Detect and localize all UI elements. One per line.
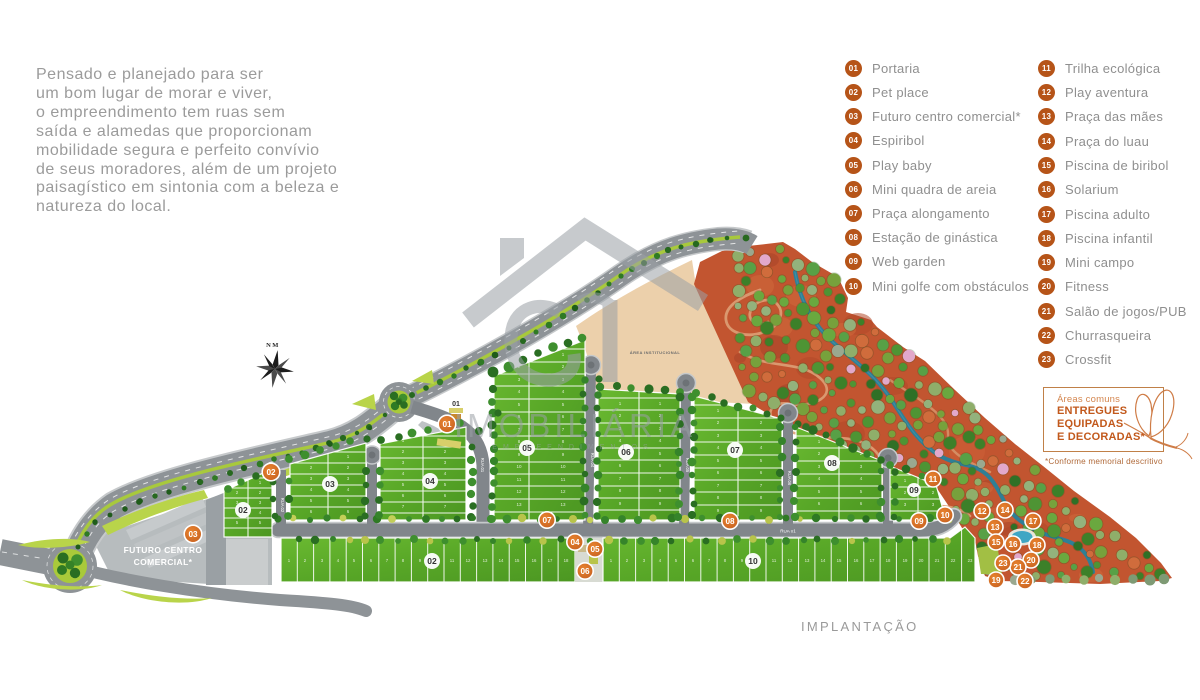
svg-text:09: 09 xyxy=(914,517,924,526)
svg-text:NM: NM xyxy=(266,342,280,349)
svg-text:17: 17 xyxy=(1028,517,1038,526)
svg-text:12: 12 xyxy=(516,489,522,494)
svg-text:18: 18 xyxy=(886,558,891,563)
svg-text:13: 13 xyxy=(483,558,488,563)
svg-text:14: 14 xyxy=(499,558,504,563)
svg-text:13: 13 xyxy=(560,502,566,507)
svg-text:IMOBILIÁRIA: IMOBILIÁRIA xyxy=(454,407,696,444)
svg-text:RUA 01: RUA 01 xyxy=(480,458,485,473)
svg-text:15: 15 xyxy=(515,558,520,563)
svg-text:17: 17 xyxy=(870,558,875,563)
svg-text:15: 15 xyxy=(991,538,1001,547)
svg-text:17: 17 xyxy=(548,558,553,563)
svg-text:02: 02 xyxy=(266,468,276,477)
svg-text:03: 03 xyxy=(325,479,335,489)
svg-text:04: 04 xyxy=(425,476,435,486)
svg-text:18: 18 xyxy=(1032,541,1042,550)
svg-text:COMERCIAL*: COMERCIAL* xyxy=(134,557,193,567)
svg-text:02: 02 xyxy=(427,556,437,566)
svg-text:23: 23 xyxy=(968,558,973,563)
svg-text:02: 02 xyxy=(238,505,248,515)
svg-text:11: 11 xyxy=(929,475,938,484)
svg-text:04: 04 xyxy=(570,538,580,547)
svg-text:21: 21 xyxy=(935,558,940,563)
svg-text:06: 06 xyxy=(580,567,590,576)
svg-text:19: 19 xyxy=(991,576,1001,585)
svg-text:22: 22 xyxy=(951,558,956,563)
svg-text:10: 10 xyxy=(516,464,522,469)
svg-text:11: 11 xyxy=(450,558,455,563)
svg-text:22: 22 xyxy=(1020,577,1030,586)
svg-text:10: 10 xyxy=(748,556,758,566)
svg-text:08: 08 xyxy=(725,517,735,526)
svg-text:07: 07 xyxy=(730,445,740,455)
svg-text:11: 11 xyxy=(561,477,566,482)
svg-text:03: 03 xyxy=(188,530,198,539)
svg-text:12: 12 xyxy=(466,558,471,563)
svg-text:11: 11 xyxy=(772,558,777,563)
svg-text:12: 12 xyxy=(560,489,566,494)
svg-text:01: 01 xyxy=(442,420,452,429)
svg-text:19: 19 xyxy=(903,558,908,563)
svg-text:20: 20 xyxy=(1026,556,1036,565)
svg-text:13: 13 xyxy=(805,558,810,563)
svg-text:05: 05 xyxy=(590,545,600,554)
svg-text:14: 14 xyxy=(1000,506,1010,515)
svg-text:21: 21 xyxy=(1013,563,1023,572)
svg-text:10: 10 xyxy=(940,511,950,520)
svg-text:13: 13 xyxy=(990,523,1000,532)
svg-text:16: 16 xyxy=(532,558,537,563)
svg-text:EMPREENDIMENTOS: EMPREENDIMENTOS xyxy=(492,444,653,451)
svg-text:23: 23 xyxy=(998,559,1008,568)
svg-text:07: 07 xyxy=(542,516,552,525)
svg-text:15: 15 xyxy=(837,558,842,563)
svg-text:FUTURO CENTRO: FUTURO CENTRO xyxy=(124,545,203,555)
svg-text:08: 08 xyxy=(827,458,837,468)
svg-text:18: 18 xyxy=(564,558,569,563)
svg-text:16: 16 xyxy=(854,558,859,563)
svg-text:10: 10 xyxy=(560,464,566,469)
svg-text:RUA 06: RUA 06 xyxy=(787,471,792,486)
svg-text:13: 13 xyxy=(516,502,522,507)
svg-text:12: 12 xyxy=(788,558,793,563)
svg-text:09: 09 xyxy=(909,485,919,495)
svg-text:14: 14 xyxy=(821,558,826,563)
svg-text:RUA 02: RUA 02 xyxy=(280,498,285,513)
svg-text:20: 20 xyxy=(919,558,924,563)
svg-text:11: 11 xyxy=(517,477,522,482)
svg-text:ÁREA INSTITUCIONAL: ÁREA INSTITUCIONAL xyxy=(630,350,681,355)
svg-text:12: 12 xyxy=(977,507,987,516)
svg-text:16: 16 xyxy=(1008,540,1018,549)
